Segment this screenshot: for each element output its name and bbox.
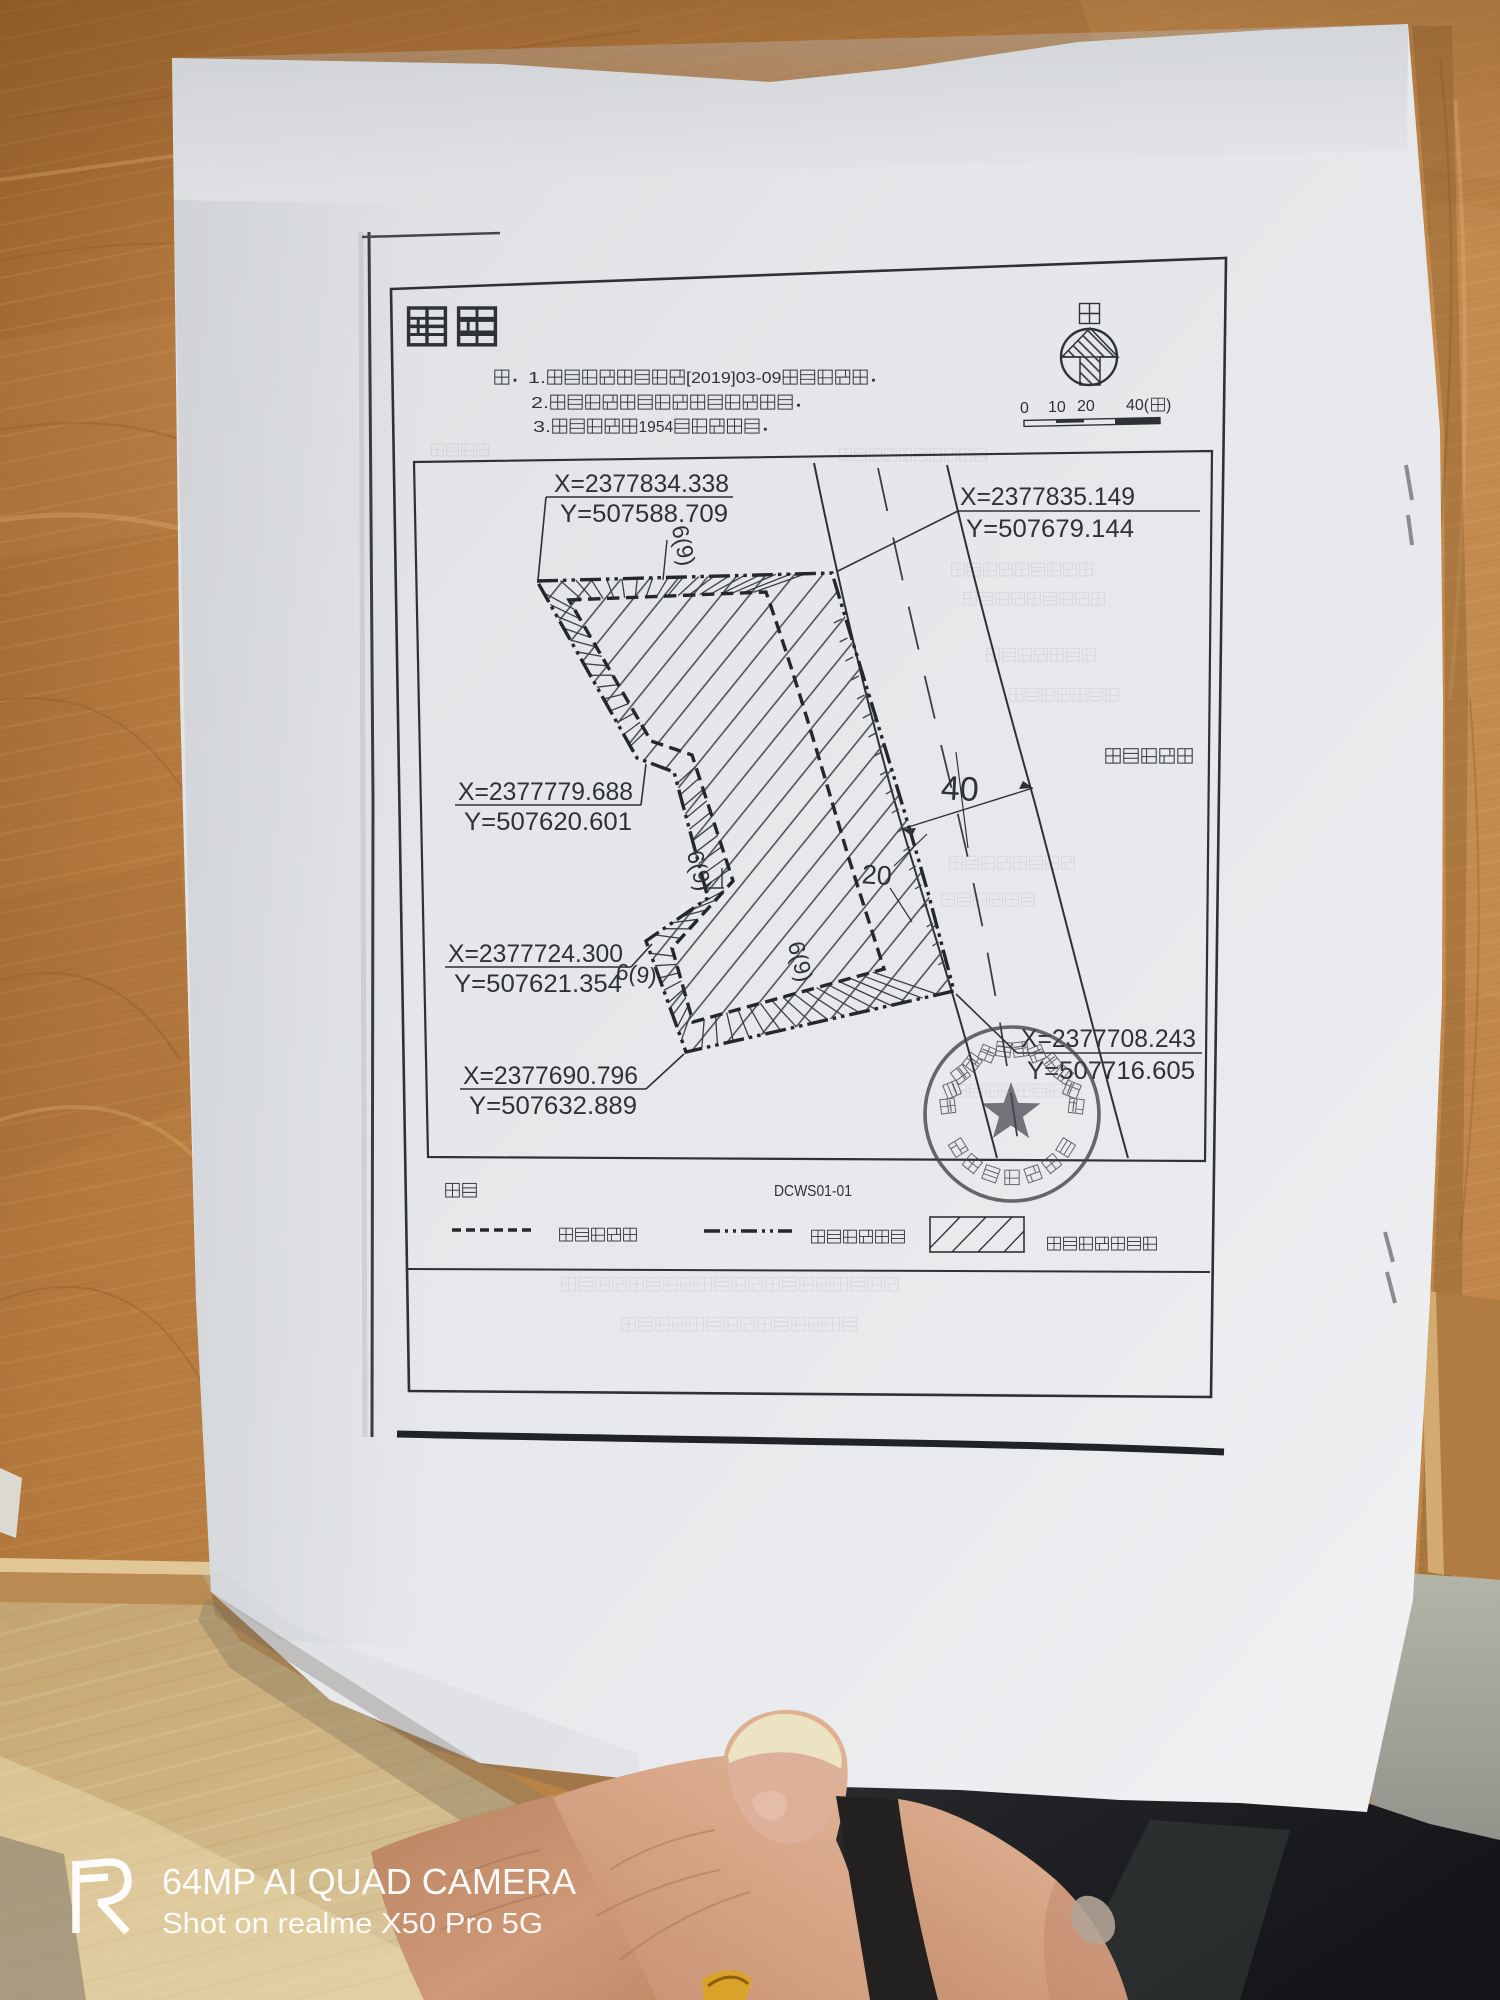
svg-text:20: 20 [1077, 398, 1095, 415]
svg-text:20: 20 [861, 859, 893, 891]
svg-text:10: 10 [1048, 399, 1066, 416]
svg-text:Y=507621.354: Y=507621.354 [454, 970, 622, 998]
svg-text:1954: 1954 [639, 419, 674, 436]
svg-text:Shot on realme X50 Pro 5G: Shot on realme X50 Pro 5G [162, 1908, 543, 1940]
svg-text:[2019]03-09: [2019]03-09 [686, 370, 782, 387]
svg-text:X=2377835.149: X=2377835.149 [960, 483, 1135, 511]
svg-text:X=2377779.688: X=2377779.688 [458, 778, 633, 806]
svg-text:DCWS01-01: DCWS01-01 [774, 1183, 852, 1200]
svg-text:64MP AI QUAD CAMERA: 64MP AI QUAD CAMERA [162, 1861, 576, 1902]
svg-text:X=2377708.243: X=2377708.243 [1021, 1025, 1196, 1053]
svg-text:X=2377690.796: X=2377690.796 [463, 1062, 638, 1090]
svg-text:X=2377724.300: X=2377724.300 [448, 940, 623, 968]
svg-text:Y=507620.601: Y=507620.601 [464, 808, 632, 836]
svg-text:40: 40 [940, 769, 980, 809]
svg-text:0: 0 [1020, 400, 1029, 417]
svg-text:Y=507632.889: Y=507632.889 [469, 1092, 637, 1120]
svg-text:Y=507588.709: Y=507588.709 [560, 500, 728, 528]
svg-text:1.: 1. [528, 370, 546, 387]
svg-text:2.: 2. [531, 395, 549, 412]
svg-text:): ) [1166, 397, 1171, 414]
svg-text:40(: 40( [1126, 397, 1150, 414]
svg-text:3.: 3. [533, 419, 551, 436]
svg-text:X=2377834.338: X=2377834.338 [554, 470, 729, 498]
svg-text:Y=507679.144: Y=507679.144 [966, 515, 1134, 543]
